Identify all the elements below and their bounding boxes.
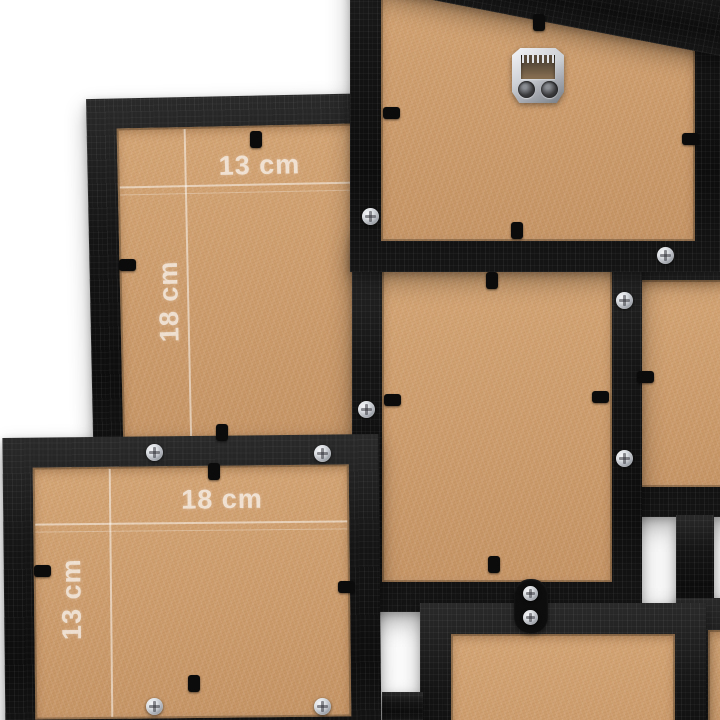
screw-icon <box>523 610 538 625</box>
backing-clip-icon <box>486 272 498 289</box>
backing-clip-icon <box>533 14 545 31</box>
width-label: 18 cm <box>181 486 263 514</box>
backing-clip-icon <box>488 556 500 573</box>
height-label: 18 cm <box>155 260 184 342</box>
backing-clip-icon <box>216 424 228 441</box>
frame-bottom-right-backing <box>708 630 720 720</box>
screw-icon <box>616 292 633 309</box>
backing-clip-icon <box>34 565 51 577</box>
width-dimension-line-echo <box>120 190 354 196</box>
sawtooth-hanger-icon <box>512 48 564 103</box>
frame-top-left-13x18: 13 cm 18 cm <box>86 93 392 485</box>
hanger-plate <box>512 48 564 103</box>
frame-middle-right-backing <box>635 280 720 487</box>
screw-icon <box>146 444 163 461</box>
height-label: 13 cm <box>58 558 86 640</box>
height-dimension-line <box>109 469 114 717</box>
hanger-hole-left <box>518 81 535 98</box>
frame-top-left-backing: 13 cm 18 cm <box>117 124 362 455</box>
width-label: 13 cm <box>218 151 300 180</box>
backing-clip-icon <box>682 133 699 145</box>
hanger-hole-right <box>541 81 558 98</box>
backing-clip-icon <box>338 581 355 593</box>
screw-icon <box>362 208 379 225</box>
frame-right-edge <box>676 515 714 611</box>
frame-bottom-middle-backing <box>451 634 675 720</box>
screw-icon <box>523 586 538 601</box>
screw-icon <box>616 450 633 467</box>
frame-middle-center-backing <box>382 262 612 582</box>
screw-icon <box>657 247 674 264</box>
width-dimension-line <box>35 520 347 525</box>
width-dimension-line-echo <box>35 528 347 532</box>
frame-middle-center <box>352 232 642 612</box>
hanger-teeth <box>522 55 554 63</box>
height-dimension-line <box>184 129 193 451</box>
screw-icon <box>314 698 331 715</box>
frame-bottom-middle <box>420 603 706 720</box>
backing-clip-icon <box>383 107 400 119</box>
backing-clip-icon <box>188 675 200 692</box>
connector-plate-icon <box>514 579 548 633</box>
width-dimension-line <box>120 182 354 189</box>
backing-clip-icon <box>637 371 654 383</box>
screw-icon <box>358 401 375 418</box>
backing-clip-icon <box>119 259 136 271</box>
backing-clip-icon <box>592 391 609 403</box>
backing-clip-icon <box>511 222 523 239</box>
frame-bottom-edge-piece <box>382 692 423 720</box>
backing-clip-icon <box>250 131 262 148</box>
collage-frame-back-photo: 13 cm 18 cm <box>0 0 720 720</box>
screw-icon <box>314 445 331 462</box>
backing-clip-icon <box>208 463 220 480</box>
backing-clip-icon <box>384 394 401 406</box>
hanger-window <box>521 55 555 79</box>
screw-icon <box>146 698 163 715</box>
